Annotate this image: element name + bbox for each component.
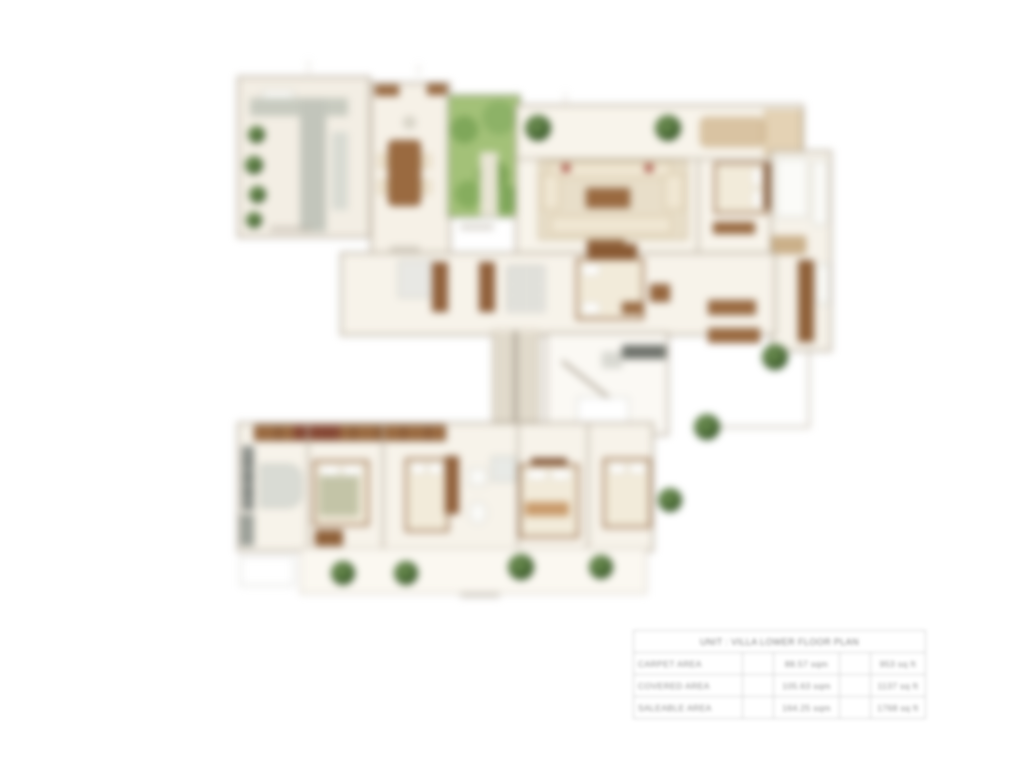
wardrobe-door-lower (445, 456, 459, 514)
pillow (527, 469, 547, 480)
area-label: COVERED AREA (634, 675, 743, 697)
dining-room (370, 82, 451, 264)
area-label: SALEABLE AREA (634, 697, 743, 719)
bed2-headboard (587, 244, 637, 258)
kitchen-counter-strip (254, 425, 446, 441)
shrub (246, 212, 262, 228)
wing-wall-1 (307, 424, 309, 550)
pillow (629, 463, 646, 474)
appliance-column-2 (240, 514, 254, 546)
wardrobe-door (432, 262, 448, 312)
closet-shelving (507, 266, 545, 312)
pillow (609, 463, 626, 474)
dimension-tick (308, 60, 309, 74)
area-metric: 164.25 sqm (774, 697, 840, 719)
spacer-cell (839, 697, 870, 719)
shrub (245, 156, 263, 174)
area-metric: 105.63 sqm (774, 675, 840, 697)
pillow (582, 264, 600, 276)
garden-court (447, 94, 521, 218)
potted-plant (694, 414, 720, 440)
red-cushion (562, 164, 570, 172)
bedroomB-bed (405, 458, 449, 532)
bathtub (812, 160, 828, 226)
wing-wall-2 (382, 424, 384, 550)
wing-wall-4 (587, 424, 589, 550)
cabinet (375, 85, 399, 96)
dining-chair (421, 180, 431, 194)
area-metric: 88.57 sqm (774, 653, 840, 675)
pillow (752, 190, 762, 208)
shelf (772, 236, 806, 254)
porch-steps (240, 556, 294, 586)
area-label: CARPET AREA (634, 653, 743, 675)
sofa-bottom (550, 216, 672, 234)
dresser (713, 222, 755, 234)
nightstand (650, 284, 670, 302)
entry-courtyard (237, 76, 371, 238)
pillow (551, 469, 571, 480)
shrub (249, 186, 266, 203)
bottom-terrace (300, 548, 647, 594)
lower-wing (237, 422, 654, 552)
table-row: SALEABLE AREA 164.25 sqm 1768 sq ft (634, 697, 926, 719)
dining-chair (378, 180, 388, 194)
room-label-smudge (460, 592, 500, 598)
table-header-row: UNIT : VILLA LOWER FLOOR PLAN (634, 631, 926, 653)
toilet (469, 502, 487, 524)
pendant-lamp (403, 116, 416, 129)
bed-runner (525, 502, 569, 516)
spacer-cell (839, 653, 870, 675)
shrub (248, 126, 265, 143)
spacer-cell (839, 675, 870, 697)
bath-vanity (776, 158, 808, 218)
kitchen-counter-upper (708, 300, 756, 315)
pillow (320, 465, 340, 476)
middle-corridor-band (340, 252, 776, 336)
potted-plant (762, 344, 788, 370)
terrace-sofa (700, 117, 764, 147)
potted-plant (525, 115, 551, 141)
room-label-smudge (460, 224, 494, 230)
armchair-right (664, 174, 684, 210)
potted-plant (394, 561, 418, 585)
area-statement-table: UNIT : VILLA LOWER FLOOR PLAN CARPET ARE… (633, 630, 926, 719)
master-bed (714, 162, 772, 214)
appliance-column (242, 446, 254, 510)
stair-rail (514, 331, 517, 431)
potted-plant (658, 488, 682, 512)
shower (491, 456, 517, 482)
bedroomA-dresser (315, 530, 343, 546)
pillow (582, 302, 600, 314)
kitchen-counter-lower (708, 328, 760, 343)
spacer-cell (743, 675, 774, 697)
stone-path-side (332, 132, 348, 210)
area-imperial: 953 sq ft (870, 653, 925, 675)
duvet-pattern (319, 476, 359, 516)
area-imperial: 1768 sq ft (870, 697, 925, 719)
spacer-cell (743, 697, 774, 719)
pillow (411, 463, 426, 474)
dining-chair (421, 154, 431, 168)
wardrobe-door (479, 262, 495, 312)
potted-plant (508, 554, 534, 580)
area-imperial: 1137 sq ft (870, 675, 925, 697)
room-label-smudge (270, 226, 312, 232)
potted-plant (655, 115, 681, 141)
table-row: CARPET AREA 88.57 sqm 953 sq ft (634, 653, 926, 675)
kitchen-island (260, 464, 302, 508)
powder-sink (602, 352, 622, 368)
armchair-left (542, 174, 560, 210)
powder-counter (622, 345, 666, 359)
bedroom-partition (697, 160, 699, 254)
upper-terrace-living-block (515, 104, 804, 256)
stone-path-top (250, 98, 348, 116)
terrace-edge-v (808, 348, 810, 428)
pillow (428, 463, 443, 474)
cabinet (427, 84, 447, 95)
pillow (752, 168, 762, 186)
bedroomC-bed (519, 464, 579, 538)
floor-plan (232, 62, 832, 602)
red-cushion (645, 164, 653, 172)
bedroomA-bed (313, 460, 369, 526)
staircase (492, 330, 540, 432)
dining-table (388, 140, 421, 206)
pillow (342, 465, 362, 476)
potted-plant (589, 555, 613, 579)
wc-fixture (816, 264, 830, 304)
dining-chair (378, 154, 388, 168)
table-title: UNIT : VILLA LOWER FLOOR PLAN (634, 631, 926, 653)
sink (469, 468, 487, 486)
bath2-fixtures (398, 260, 434, 298)
dimension-tick (565, 92, 566, 104)
table-row: COVERED AREA 105.63 sqm 1137 sq ft (634, 675, 926, 697)
foyer (545, 332, 669, 436)
coffee-table (586, 188, 630, 208)
spacer-cell (743, 653, 774, 675)
wardrobe (798, 260, 814, 342)
stone-path-stem (300, 98, 326, 232)
right-wing (770, 150, 832, 352)
bedroomD-bed (603, 458, 651, 528)
garden-path (480, 152, 498, 216)
stove-segment (294, 425, 340, 439)
potted-plant (331, 561, 355, 585)
console (622, 302, 644, 314)
dimension-tick (418, 64, 419, 76)
